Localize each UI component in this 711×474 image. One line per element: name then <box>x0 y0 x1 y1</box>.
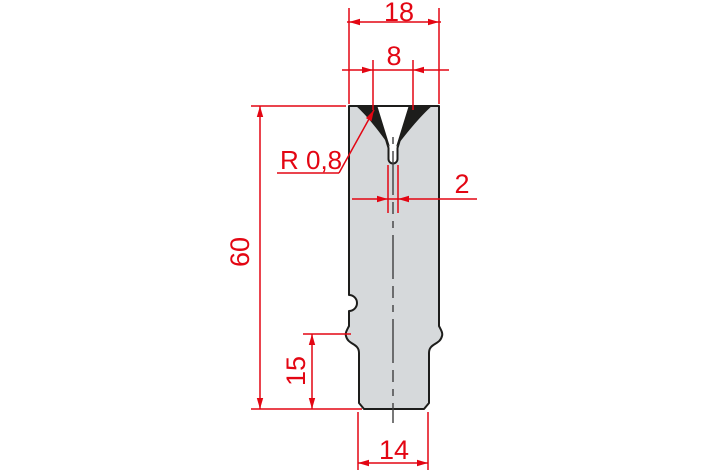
dimension-text-die-width: 18 <box>384 0 414 27</box>
arrowhead-top <box>257 106 263 117</box>
dimension-text-shank-width: 14 <box>379 435 409 465</box>
arrowhead-bottom <box>309 398 315 409</box>
dimension-shank-height: 15 <box>281 334 351 409</box>
arrowhead-left <box>362 67 373 73</box>
arrowhead-left <box>358 460 369 466</box>
dimension-text-v-opening: 8 <box>386 41 401 71</box>
v-die-drawing: 18 8 R 0,8 2 60 15 <box>0 0 711 474</box>
dimension-text-groove-radius: R 0,8 <box>280 145 342 175</box>
arrowhead-right <box>417 460 428 466</box>
arrowhead-right <box>428 19 439 25</box>
dimension-text-die-height: 60 <box>225 237 255 267</box>
dimension-v-opening: 8 <box>342 41 449 110</box>
arrowhead-top <box>309 334 315 345</box>
die-body-group <box>346 105 443 423</box>
dimension-text-shank-height: 15 <box>281 356 311 386</box>
dimension-text-slot-width: 2 <box>454 169 469 199</box>
arrowhead-bottom <box>257 398 263 409</box>
arrowhead-right <box>413 67 424 73</box>
arrowhead-left <box>349 19 360 25</box>
technical-drawing-canvas: 18 8 R 0,8 2 60 15 <box>0 0 711 474</box>
